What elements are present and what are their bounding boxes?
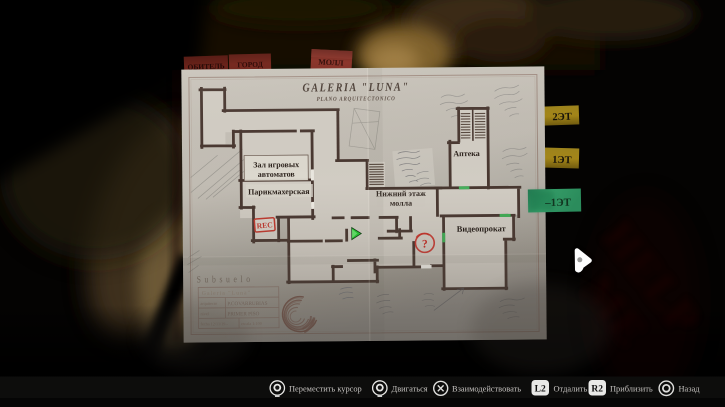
svg-text:–1ЭТ: –1ЭТ <box>544 197 572 209</box>
svg-text:Двигаться: Двигаться <box>392 384 428 393</box>
svg-text:L2: L2 <box>535 385 546 395</box>
svg-text:Переместить курсор: Переместить курсор <box>289 384 362 393</box>
svg-text:1ЭТ: 1ЭТ <box>552 155 572 167</box>
svg-text:Отдалить: Отдалить <box>554 384 588 393</box>
svg-text:Приблизить: Приблизить <box>610 384 653 393</box>
svg-text:Взаимодействовать: Взаимодействовать <box>452 384 521 393</box>
svg-text:МОЛЛ: МОЛЛ <box>318 57 344 67</box>
svg-text:2ЭТ: 2ЭТ <box>552 112 572 124</box>
svg-text:Назад: Назад <box>679 384 701 393</box>
svg-text:R2: R2 <box>591 385 603 395</box>
svg-text:ГОРОД: ГОРОД <box>237 60 264 70</box>
